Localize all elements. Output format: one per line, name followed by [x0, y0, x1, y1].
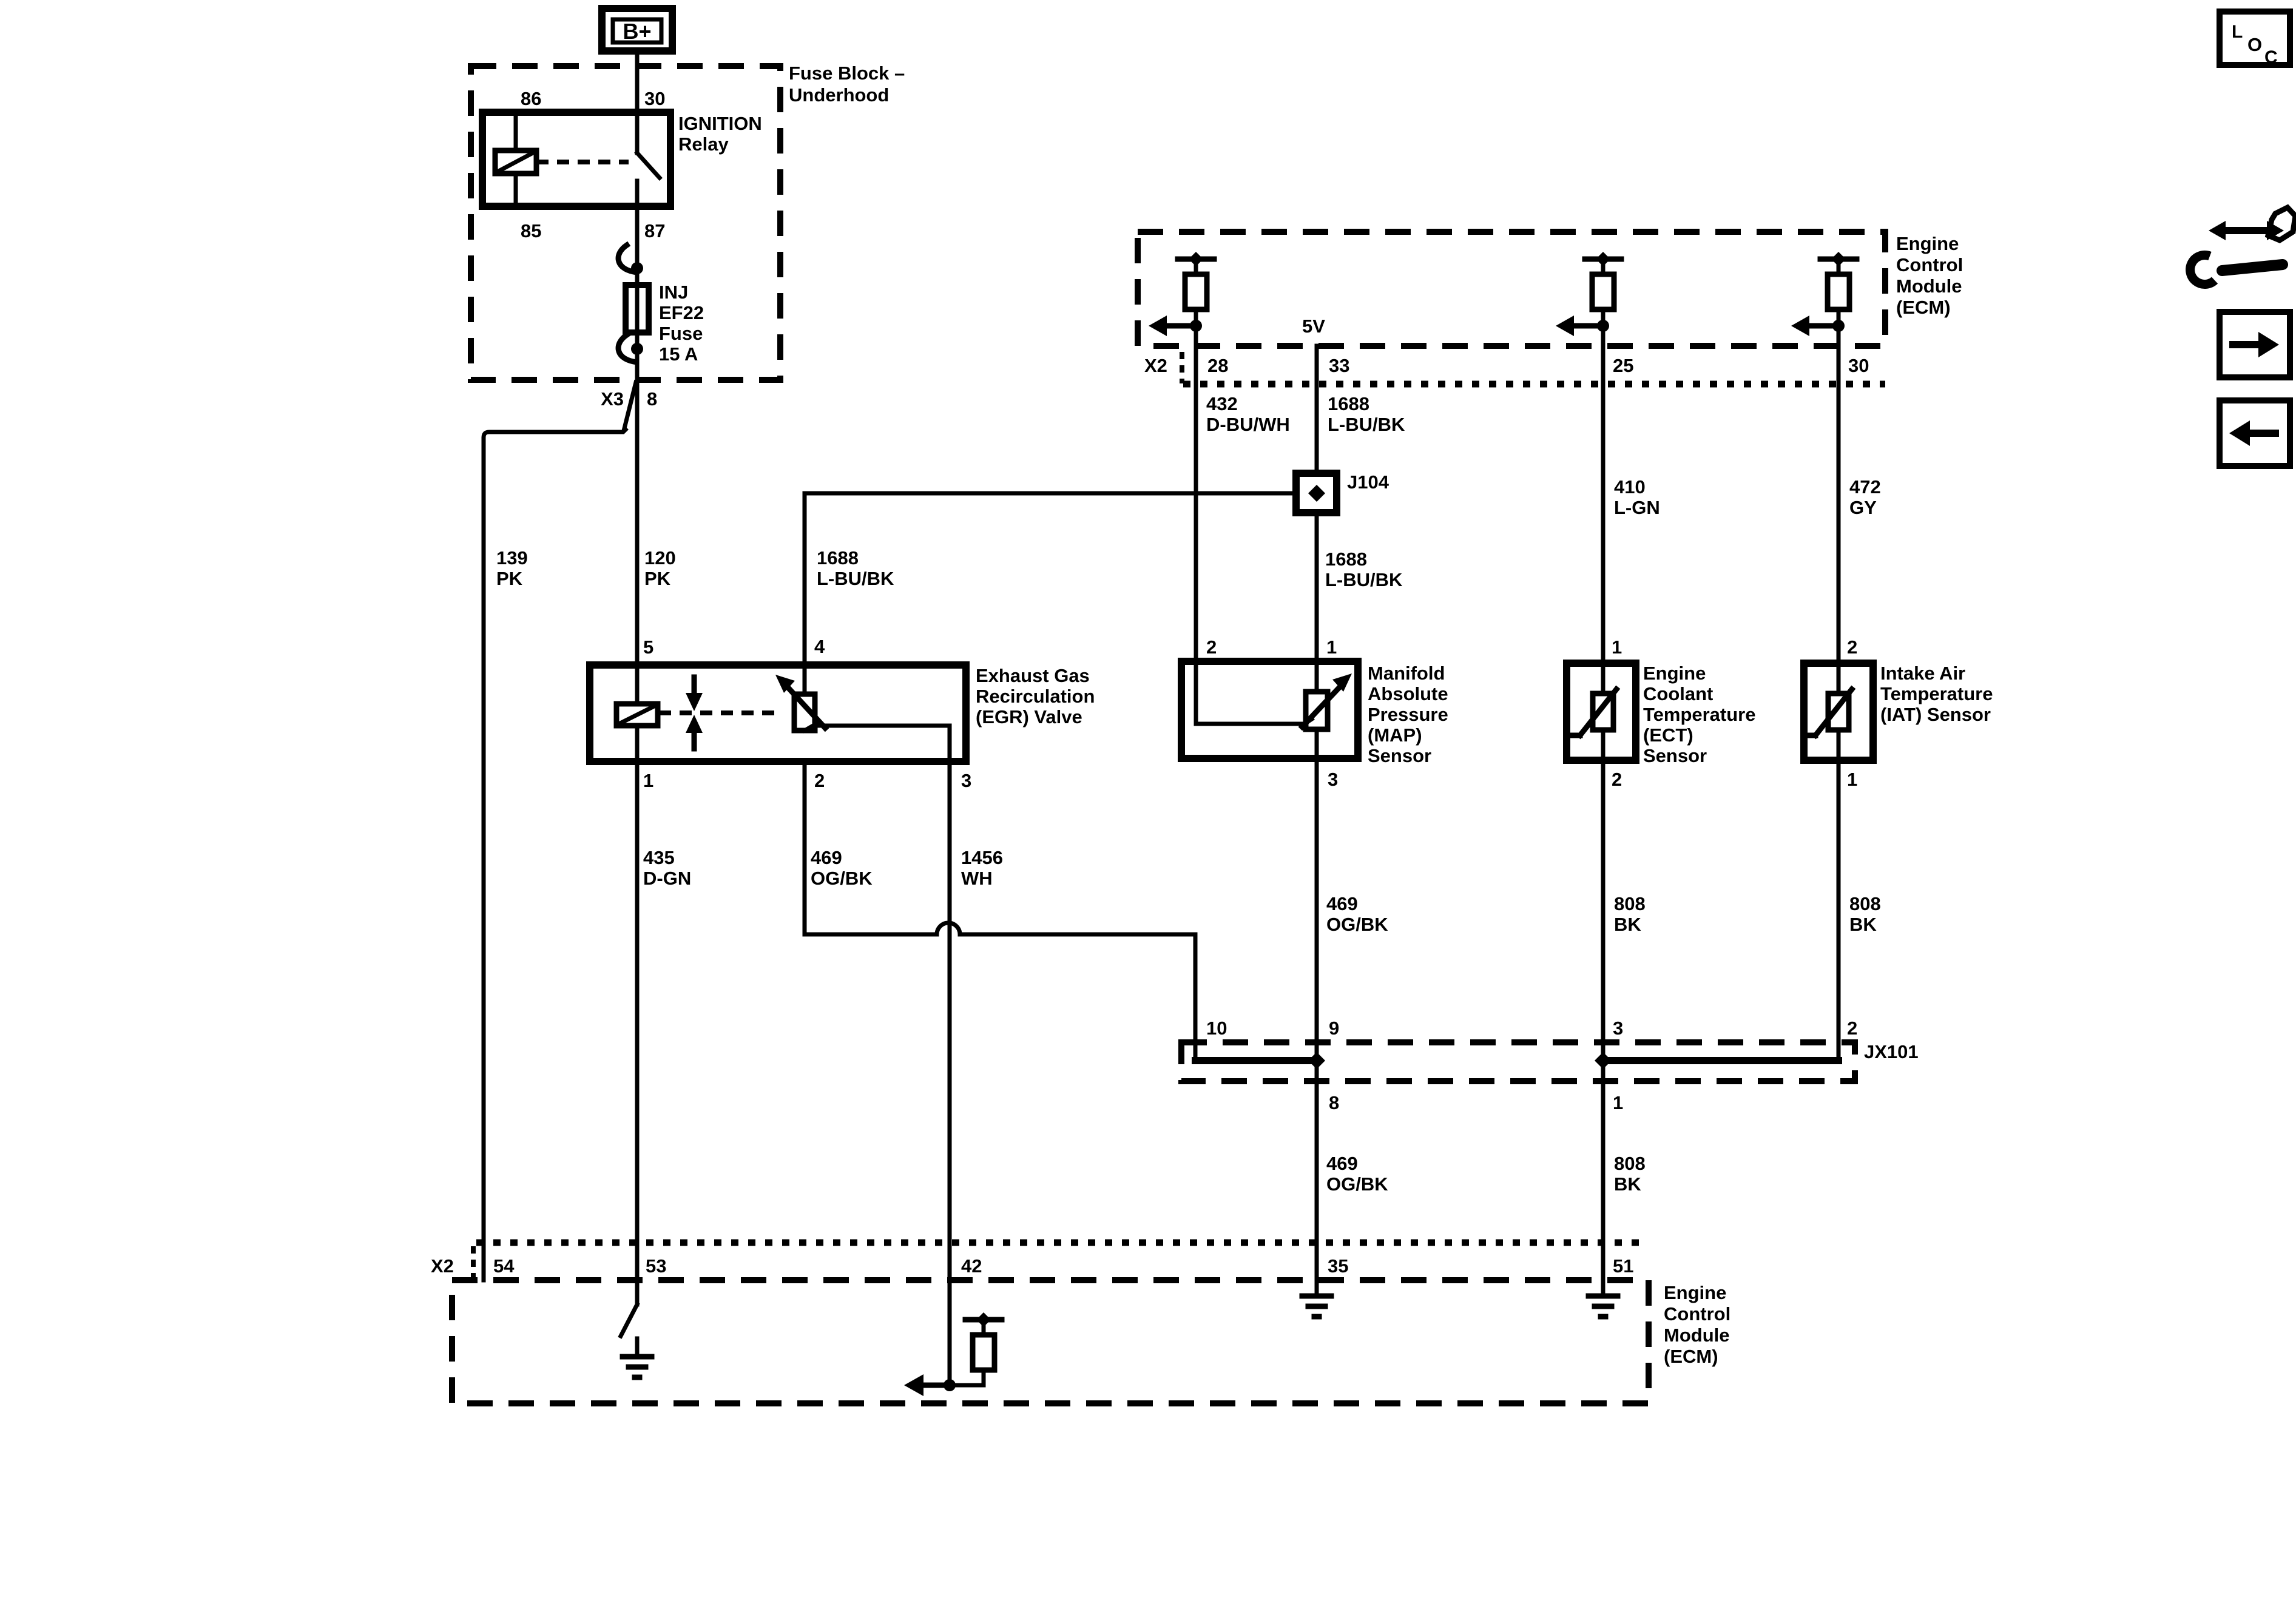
map-pin1-label: 1 — [1326, 636, 1337, 658]
wire-label-color: OG/BK — [1326, 914, 1388, 935]
relay-pin85-label: 85 — [521, 220, 541, 241]
j104-splice-diamond — [1308, 485, 1325, 502]
wire-label-code: 472 — [1849, 476, 1881, 498]
map-name-line5: Sensor — [1368, 745, 1431, 766]
connector-x3-label: X3 — [601, 388, 624, 410]
fuse-block-label-line2: Underhood — [789, 84, 889, 106]
switch-blade — [621, 1304, 637, 1336]
pullup-resistor — [1828, 274, 1849, 309]
ecm-pullup-pin30 — [1791, 252, 1857, 336]
wire-label-color: BK — [1614, 1173, 1641, 1195]
ecm-pin35-ground — [1302, 1296, 1331, 1317]
fuse-label-line1: INJ — [659, 282, 688, 303]
map-name-line1: Manifold — [1368, 663, 1445, 684]
signal-arrow-head — [1556, 316, 1574, 336]
connector-x3: X3 8 — [601, 382, 657, 428]
jx101-pin1-label: 1 — [1613, 1092, 1623, 1113]
wire-label-color: GY — [1849, 497, 1877, 518]
scan-tool-icon[interactable] — [2190, 208, 2295, 284]
ecm-pin30-label: 30 — [1848, 355, 1869, 376]
iat-name-line2: Temperature — [1880, 683, 1993, 704]
back-button[interactable] — [2220, 400, 2290, 466]
ecm-top-name-line1: Engine — [1896, 233, 1959, 254]
egr-pin4-label: 4 — [814, 636, 825, 657]
relay-name-line2: Relay — [678, 133, 729, 155]
egr-valve: 5 4 1 2 3 Exhaust Gas Recirculation (EGR… — [590, 636, 1095, 791]
ecm-bottom-name-line2: Control — [1664, 1303, 1730, 1325]
wire-label-code: 432 — [1206, 393, 1238, 414]
iat-name-line3: (IAT) Sensor — [1880, 704, 1991, 725]
wire-label-color: L-BU/BK — [1328, 414, 1405, 435]
iat-pin2-label: 2 — [1847, 636, 1857, 658]
ecm-pin42-label: 42 — [961, 1255, 982, 1277]
pullup-resistor — [973, 1335, 994, 1370]
battery-terminal: B+ — [602, 8, 672, 51]
battery-terminal-label: B+ — [623, 19, 651, 44]
egr-name-line3: (EGR) Valve — [976, 706, 1082, 727]
ect-name-line5: Sensor — [1643, 745, 1707, 766]
map-name-line3: Pressure — [1368, 704, 1448, 725]
ecm-pin53-label: 53 — [646, 1255, 666, 1277]
signal-arrow-head — [1791, 316, 1809, 336]
iat-name-line1: Intake Air — [1880, 663, 1965, 684]
ecm-pin35-label: 35 — [1328, 1255, 1348, 1277]
jx101-pin3-label: 3 — [1613, 1018, 1623, 1039]
jx101-pin10-label: 10 — [1206, 1018, 1227, 1039]
iat-sensor: 2 1 Intake Air Temperature (IAT) Sensor — [1804, 636, 1993, 790]
pullup-resistor — [1185, 274, 1207, 309]
relay-switch-blade — [637, 153, 660, 178]
wrench-handle — [2222, 265, 2283, 271]
junction-block-jx101: 10 9 3 2 JX101 8 1 — [1181, 1018, 1919, 1113]
wire-label-color: L-BU/BK — [817, 568, 894, 589]
ecm-pin42-driver — [904, 1312, 1002, 1396]
ecm-5v-label: 5V — [1302, 316, 1325, 337]
wire-1456-wh — [805, 726, 950, 1385]
wire-label-color: PK — [644, 568, 671, 589]
connector-x3-slash — [624, 382, 636, 428]
wire-label-code: 808 — [1614, 1153, 1646, 1174]
jx101-pin9-label: 9 — [1329, 1018, 1339, 1039]
map-pin2-label: 2 — [1206, 636, 1217, 658]
wire-469-egr-to-jx101 — [805, 761, 1195, 1061]
ect-pin2-label: 2 — [1612, 769, 1622, 790]
wire-label-code: 120 — [644, 547, 676, 569]
signal-arrow-head — [904, 1374, 923, 1396]
wire-label-color: OG/BK — [1326, 1173, 1388, 1195]
ect-sensor: 1 2 Engine Coolant Temperature (ECT) Sen… — [1567, 636, 1756, 790]
wire-label-color: L-GN — [1614, 497, 1660, 518]
egr-pin5-label: 5 — [643, 636, 653, 658]
ecm-bottom-name-line4: (ECM) — [1664, 1346, 1718, 1367]
fuse-label-line2: EF22 — [659, 302, 704, 323]
wire-label-code: 808 — [1849, 893, 1881, 914]
egr-pin1-label: 1 — [643, 770, 653, 791]
ect-name-line4: (ECT) — [1643, 724, 1693, 746]
wire-label-code: 808 — [1614, 893, 1646, 914]
wire-label-color: BK — [1614, 914, 1641, 935]
ecm-bottom-name-line1: Engine — [1664, 1282, 1726, 1303]
ecm-bottom-dashed-box — [452, 1280, 1649, 1403]
ecm-top-name-line2: Control — [1896, 254, 1963, 275]
egr-name-line1: Exhaust Gas — [976, 665, 1090, 686]
relay-name-line1: IGNITION — [678, 113, 762, 134]
ecm-pin51-ground — [1589, 1296, 1618, 1317]
ecm-pin25-label: 25 — [1613, 355, 1633, 376]
ect-name-line3: Temperature — [1643, 704, 1756, 725]
egr-pin3-label: 3 — [961, 770, 971, 791]
egr-valve-arrow-upper-head — [686, 693, 703, 711]
fuse-label-line4: 15 A — [659, 343, 698, 365]
jx101-label: JX101 — [1864, 1041, 1919, 1062]
wire-label-code: 1688 — [1325, 548, 1367, 570]
relay-coil-diagonal — [496, 152, 535, 172]
fuse-block-underhood: Fuse Block – Underhood 86 30 85 87 IGNIT… — [471, 62, 905, 428]
wire-label-color: BK — [1849, 914, 1877, 935]
wire-label-color: WH — [961, 868, 993, 889]
ecm-pin54-label: 54 — [493, 1255, 515, 1277]
inj-fuse: INJ EF22 Fuse 15 A — [618, 245, 704, 365]
wire-label-code: 1456 — [961, 847, 1003, 868]
relay-pin86-label: 86 — [521, 88, 541, 109]
wrench-open-end — [2190, 255, 2215, 284]
ect-name-line1: Engine — [1643, 663, 1706, 684]
ecm-pullup-pin28 — [1149, 252, 1214, 336]
ecm-top-dashed-box — [1138, 232, 1885, 346]
map-name-line4: (MAP) — [1368, 724, 1422, 746]
wire-label-color: PK — [496, 568, 523, 589]
wire-label-color: D-BU/WH — [1206, 414, 1290, 435]
wire-label-code: 1688 — [1328, 393, 1369, 414]
wiring-diagram-canvas: B+ Fuse Block – Underhood 86 30 85 87 IG… — [0, 0, 2296, 1617]
forward-arrow-head — [2258, 332, 2279, 357]
loc-button[interactable]: L O C — [2220, 12, 2290, 67]
jx101-pin2-label: 2 — [1847, 1018, 1857, 1039]
ecm-top-connector-label: X2 — [1144, 355, 1167, 376]
wire-label-code: 435 — [643, 847, 675, 868]
wire-label-color: OG/BK — [811, 868, 873, 889]
ecm-pullup-pin25 — [1556, 252, 1621, 336]
ecm-top-name-line3: Module — [1896, 275, 1962, 297]
wire-label-color: D-GN — [643, 868, 691, 889]
ecm-pin53-switch-ground — [621, 1304, 652, 1377]
ecm-pin28-label: 28 — [1207, 355, 1228, 376]
connector-outline — [2268, 208, 2295, 240]
wire-label-code: 469 — [1326, 893, 1358, 914]
pullup-resistor — [1592, 274, 1614, 309]
egr-name-line2: Recirculation — [976, 686, 1095, 707]
fuse-block-label-line1: Fuse Block – — [789, 62, 905, 84]
loc-letter-l: L — [2232, 22, 2243, 42]
back-arrow-head — [2229, 420, 2250, 446]
ecm-bottom-block: X2 54 53 42 35 51 Engine Control Module … — [431, 1243, 1730, 1403]
egr-valve-arrow-lower-head — [686, 715, 703, 733]
map-pin3-label: 3 — [1328, 769, 1338, 790]
j104-label: J104 — [1347, 471, 1389, 493]
loc-letter-o: O — [2247, 34, 2262, 55]
wire-label-code: 469 — [811, 847, 842, 868]
relay-pin30-label: 30 — [644, 88, 665, 109]
wire-label-code: 469 — [1326, 1153, 1358, 1174]
forward-button[interactable] — [2220, 312, 2290, 377]
ecm-top-name-line4: (ECM) — [1896, 297, 1951, 318]
toolbar-icons: L O C — [2190, 12, 2295, 466]
signal-arrow-head — [1149, 316, 1167, 336]
ecm-pin33-label: 33 — [1329, 355, 1349, 376]
double-arrow-left-head — [2209, 221, 2226, 240]
wire-label-code: 1688 — [817, 547, 859, 569]
map-name-line2: Absolute — [1368, 683, 1448, 704]
ect-pin1-label: 1 — [1612, 636, 1622, 658]
fuse-label-line3: Fuse — [659, 323, 703, 344]
wire-label-color: L-BU/BK — [1325, 569, 1403, 590]
wire-label-code: 410 — [1614, 476, 1646, 498]
loc-letter-c: C — [2264, 47, 2278, 67]
relay-pin87-label: 87 — [644, 220, 665, 241]
map-sensor-box — [1181, 661, 1358, 758]
connector-x3-pin-label: 8 — [647, 388, 657, 410]
jx101-pin8-label: 8 — [1329, 1092, 1339, 1113]
ecm-pin51-label: 51 — [1613, 1255, 1633, 1277]
ecm-bottom-name-line3: Module — [1664, 1325, 1730, 1346]
egr-coil-diagonal — [618, 705, 657, 724]
iat-pin1-label: 1 — [1847, 769, 1857, 790]
wiring-diagram-page: B+ Fuse Block – Underhood 86 30 85 87 IG… — [0, 0, 2296, 1617]
wire-label-code: 139 — [496, 547, 528, 569]
splice-j104: J104 — [1296, 471, 1389, 513]
egr-pin2-label: 2 — [814, 770, 825, 791]
ignition-relay: 86 30 85 87 IGNITION Relay — [482, 88, 762, 241]
ect-name-line2: Coolant — [1643, 683, 1713, 704]
ecm-bottom-connector-label: X2 — [431, 1255, 454, 1277]
